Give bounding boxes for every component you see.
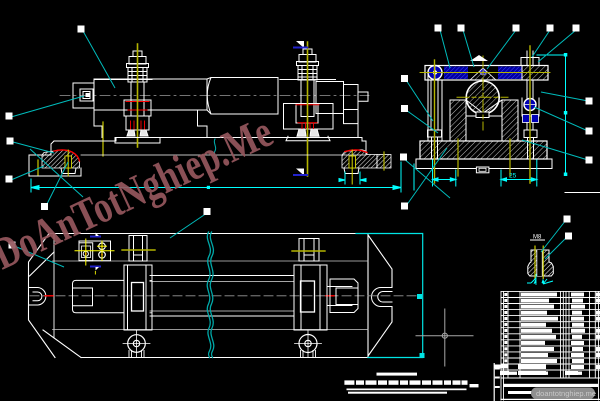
svg-text:M8: M8 [533, 235, 542, 241]
svg-text:25: 25 [509, 173, 517, 180]
svg-text:doantotnghiep.me: doantotnghiep.me [536, 389, 596, 398]
